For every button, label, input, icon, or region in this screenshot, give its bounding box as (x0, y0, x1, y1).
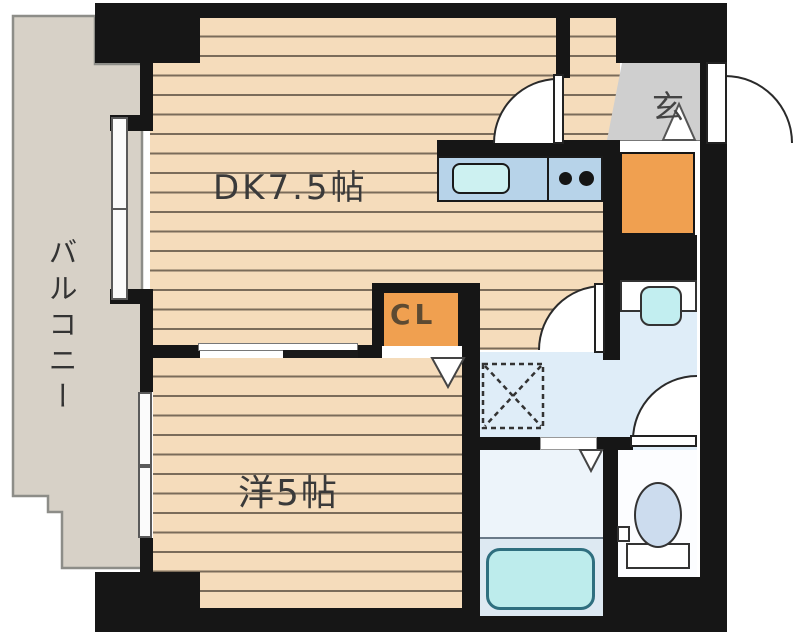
toilet-door-leaf (630, 435, 697, 447)
balcony-label: バルコニー (40, 237, 82, 417)
toilet-bowl (634, 482, 682, 548)
toilet-flush-button (617, 526, 630, 542)
washroom-door-leaf (594, 283, 605, 353)
entrance-door-leaf (706, 62, 727, 144)
floor-plan: CL DK7.5帖 洋5帖 玄 バルコニー (0, 0, 800, 638)
entrance-label: 玄 (652, 82, 684, 128)
bathtub (486, 548, 595, 610)
dk-label: DK7.5帖 (213, 160, 368, 209)
western-room-label: 洋5帖 (238, 464, 339, 516)
kitchen-hall-door-leaf (553, 74, 564, 144)
